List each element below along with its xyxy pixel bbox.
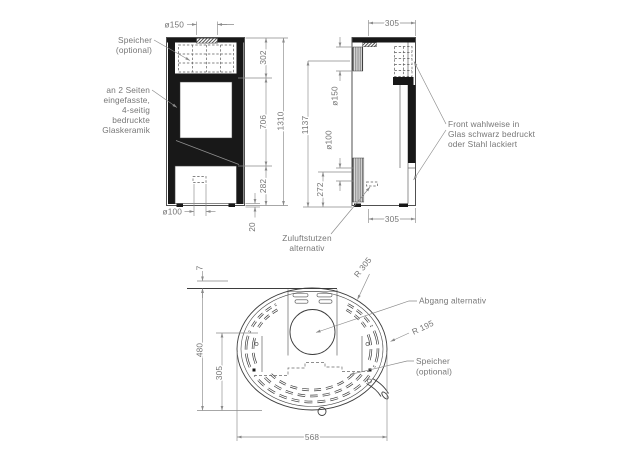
top-body [187, 281, 389, 416]
dim-base: 282 [258, 179, 268, 194]
front-left-panel [168, 40, 175, 204]
side-view: 305 305 1137 ø150 ø100 [282, 18, 535, 253]
drawing-canvas: ø150 302 706 282 1310 20 [0, 0, 624, 460]
label-top-speicher-2: (optional) [416, 367, 452, 377]
label-glass-4: bedruckte [112, 115, 150, 125]
top-callouts: Abgang alternativ Speicher (optional) [316, 296, 487, 377]
side-divider [393, 77, 414, 85]
dim-flue-rear: ø150 [330, 86, 340, 106]
side-zuluft-stub [367, 182, 378, 186]
label-glass-1: an 2 Seiten [106, 85, 150, 95]
label-top-speicher-1: Speicher [416, 356, 450, 366]
dim-depth-total: 480 [195, 343, 205, 358]
top-view: 7 480 305 568 R 305 R 195 Abgang alterna… [187, 255, 487, 442]
dim-flue-height: 1137 [300, 116, 310, 135]
front-glass-window [180, 82, 232, 138]
front-divider [175, 74, 237, 79]
top-brackets [253, 336, 372, 372]
dim-total: 1310 [276, 111, 286, 130]
front-body [167, 38, 245, 208]
label-front-2: Glas schwarz bedruckt [448, 129, 536, 139]
dim-upper: 302 [258, 50, 268, 65]
side-top-plate [353, 38, 416, 43]
dim-flue-top: ø150 [164, 20, 184, 30]
front-foot-right [229, 204, 236, 208]
dim-glass: 706 [258, 115, 268, 130]
top-slot-plates [293, 294, 332, 304]
label-glass-3: 4-seitig [122, 105, 150, 115]
side-handle-pipe [367, 379, 390, 401]
side-speicher-area [395, 47, 413, 77]
side-rear-inlet-hatch [353, 158, 364, 202]
label-abgang: Abgang alternativ [419, 296, 487, 306]
dim-bottom-depth: 305 [385, 214, 400, 224]
front-view: ø150 302 706 282 1310 20 [102, 20, 288, 232]
flue-opening-circle [290, 310, 335, 355]
dim-inlet-rear: ø100 [324, 130, 334, 150]
stove-technical-drawing: ø150 302 706 282 1310 20 [0, 0, 624, 460]
dim-top-depth: 305 [385, 18, 400, 28]
label-glass-5: Glaskeramik [102, 125, 150, 135]
dim-feet: 20 [247, 222, 257, 232]
dim-radius-front: R 195 [410, 318, 435, 337]
label-speicher-2: (optional) [116, 45, 152, 55]
label-zuluft-1: Zuluftstutzen [282, 233, 332, 243]
label-zuluft-2: alternativ [289, 243, 325, 253]
label-glass-2: eingefasste, [103, 95, 150, 105]
side-front-glass-edge [408, 85, 416, 163]
dim-radius-body: R 305 [352, 255, 374, 279]
top-dimensions: 7 480 305 568 R 305 R 195 [195, 255, 436, 442]
side-rear-flue-hatch [353, 47, 363, 71]
top-outer-shell [237, 288, 387, 410]
top-vent-slots [246, 305, 378, 403]
front-flue-stub-hatch [197, 38, 218, 43]
dim-depth-center: 305 [214, 366, 224, 381]
side-top-outlet-hatch [363, 43, 377, 47]
label-speicher-1: Speicher [118, 35, 152, 45]
dim-wall-gap: 7 [195, 265, 205, 270]
dim-inlet: ø100 [162, 207, 182, 217]
side-foot-front [399, 204, 408, 208]
bottom-knob [318, 408, 326, 416]
top-speicher-outline [254, 363, 369, 376]
label-front-3: oder Stahl lackiert [448, 139, 518, 149]
front-right-panel [237, 40, 244, 204]
side-body [352, 38, 416, 208]
label-front-1: Front wahlweise in [448, 119, 520, 129]
dim-width: 568 [305, 432, 320, 442]
dim-inlet-height: 272 [315, 182, 325, 197]
